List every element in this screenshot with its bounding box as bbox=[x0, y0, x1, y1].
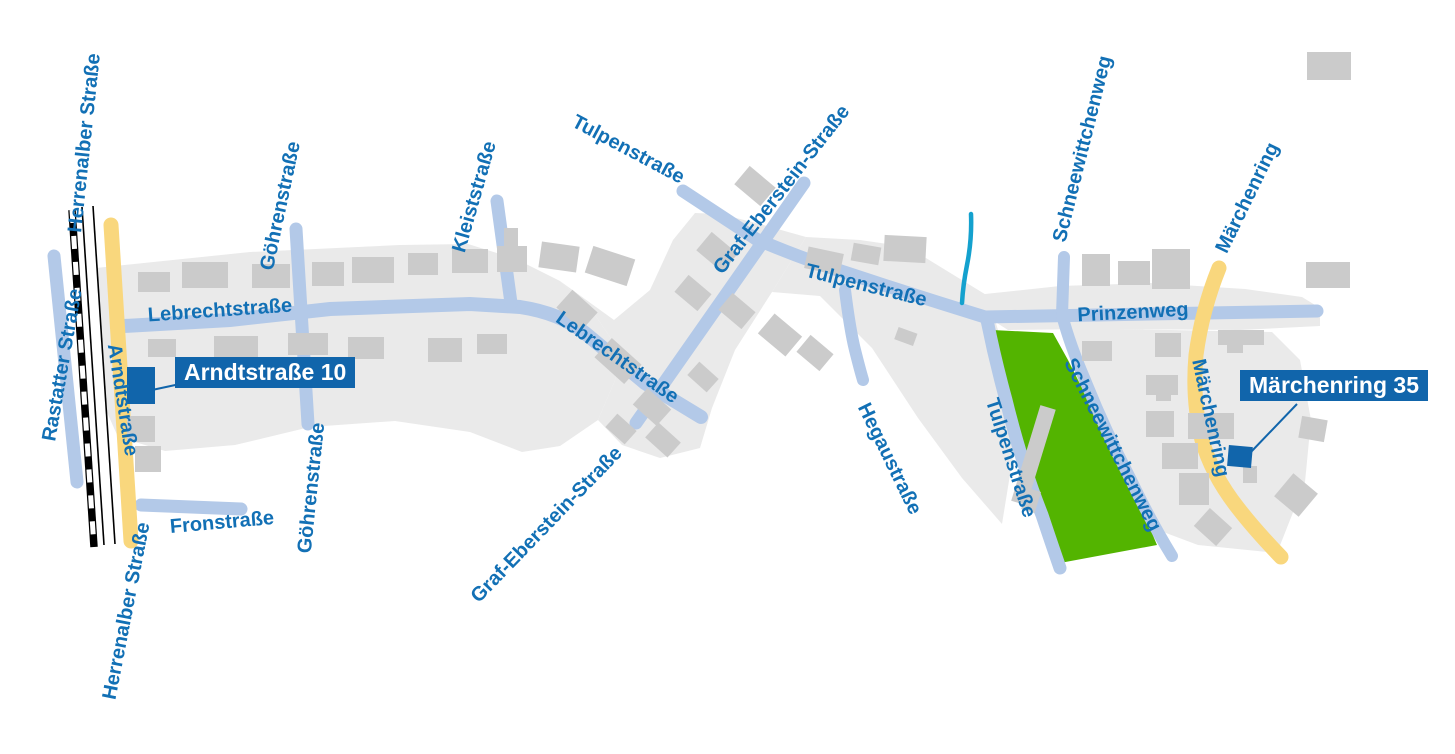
building bbox=[758, 313, 802, 356]
address-box-maerchenring-35: Märchenring 35 bbox=[1240, 370, 1428, 401]
building bbox=[1146, 411, 1174, 437]
building bbox=[504, 228, 518, 248]
road-prinzenweg bbox=[985, 311, 1317, 317]
building bbox=[1188, 413, 1234, 439]
building bbox=[1152, 249, 1190, 289]
building bbox=[1306, 262, 1350, 288]
building bbox=[1118, 261, 1150, 285]
building bbox=[1155, 333, 1181, 357]
building bbox=[497, 246, 527, 272]
building bbox=[1162, 443, 1198, 469]
marker-building-arndtstrasse-10 bbox=[127, 367, 155, 404]
building bbox=[252, 264, 290, 288]
building bbox=[1227, 345, 1243, 353]
building bbox=[148, 339, 176, 357]
city-map: Herrenalber Straße Rastatter Straße Arnd… bbox=[0, 0, 1455, 754]
building bbox=[883, 235, 926, 263]
building bbox=[477, 334, 507, 354]
building bbox=[538, 241, 579, 272]
building bbox=[1082, 254, 1110, 286]
building bbox=[138, 272, 170, 292]
address-box-arndtstrasse-10: Arndtstraße 10 bbox=[175, 357, 355, 388]
building bbox=[288, 333, 328, 355]
building bbox=[127, 416, 155, 442]
building bbox=[352, 257, 394, 283]
building bbox=[1218, 330, 1264, 345]
building bbox=[1082, 341, 1112, 361]
building bbox=[348, 337, 384, 359]
building bbox=[585, 246, 635, 286]
road-schneewittchenweg-nord bbox=[1062, 257, 1064, 315]
building bbox=[1307, 52, 1351, 80]
building bbox=[1243, 466, 1257, 483]
building bbox=[1146, 375, 1178, 395]
building bbox=[312, 262, 344, 286]
building bbox=[1179, 473, 1209, 505]
building bbox=[796, 335, 833, 371]
building bbox=[135, 446, 161, 472]
building bbox=[1298, 416, 1327, 442]
building bbox=[452, 249, 488, 273]
marker-building-maerchenring-35 bbox=[1227, 445, 1253, 468]
building bbox=[734, 166, 775, 206]
building bbox=[182, 262, 228, 288]
building bbox=[428, 338, 462, 362]
building bbox=[1156, 394, 1171, 401]
road-fronstrasse bbox=[141, 505, 241, 509]
area-east-wedge bbox=[772, 237, 1014, 524]
building bbox=[408, 253, 438, 275]
